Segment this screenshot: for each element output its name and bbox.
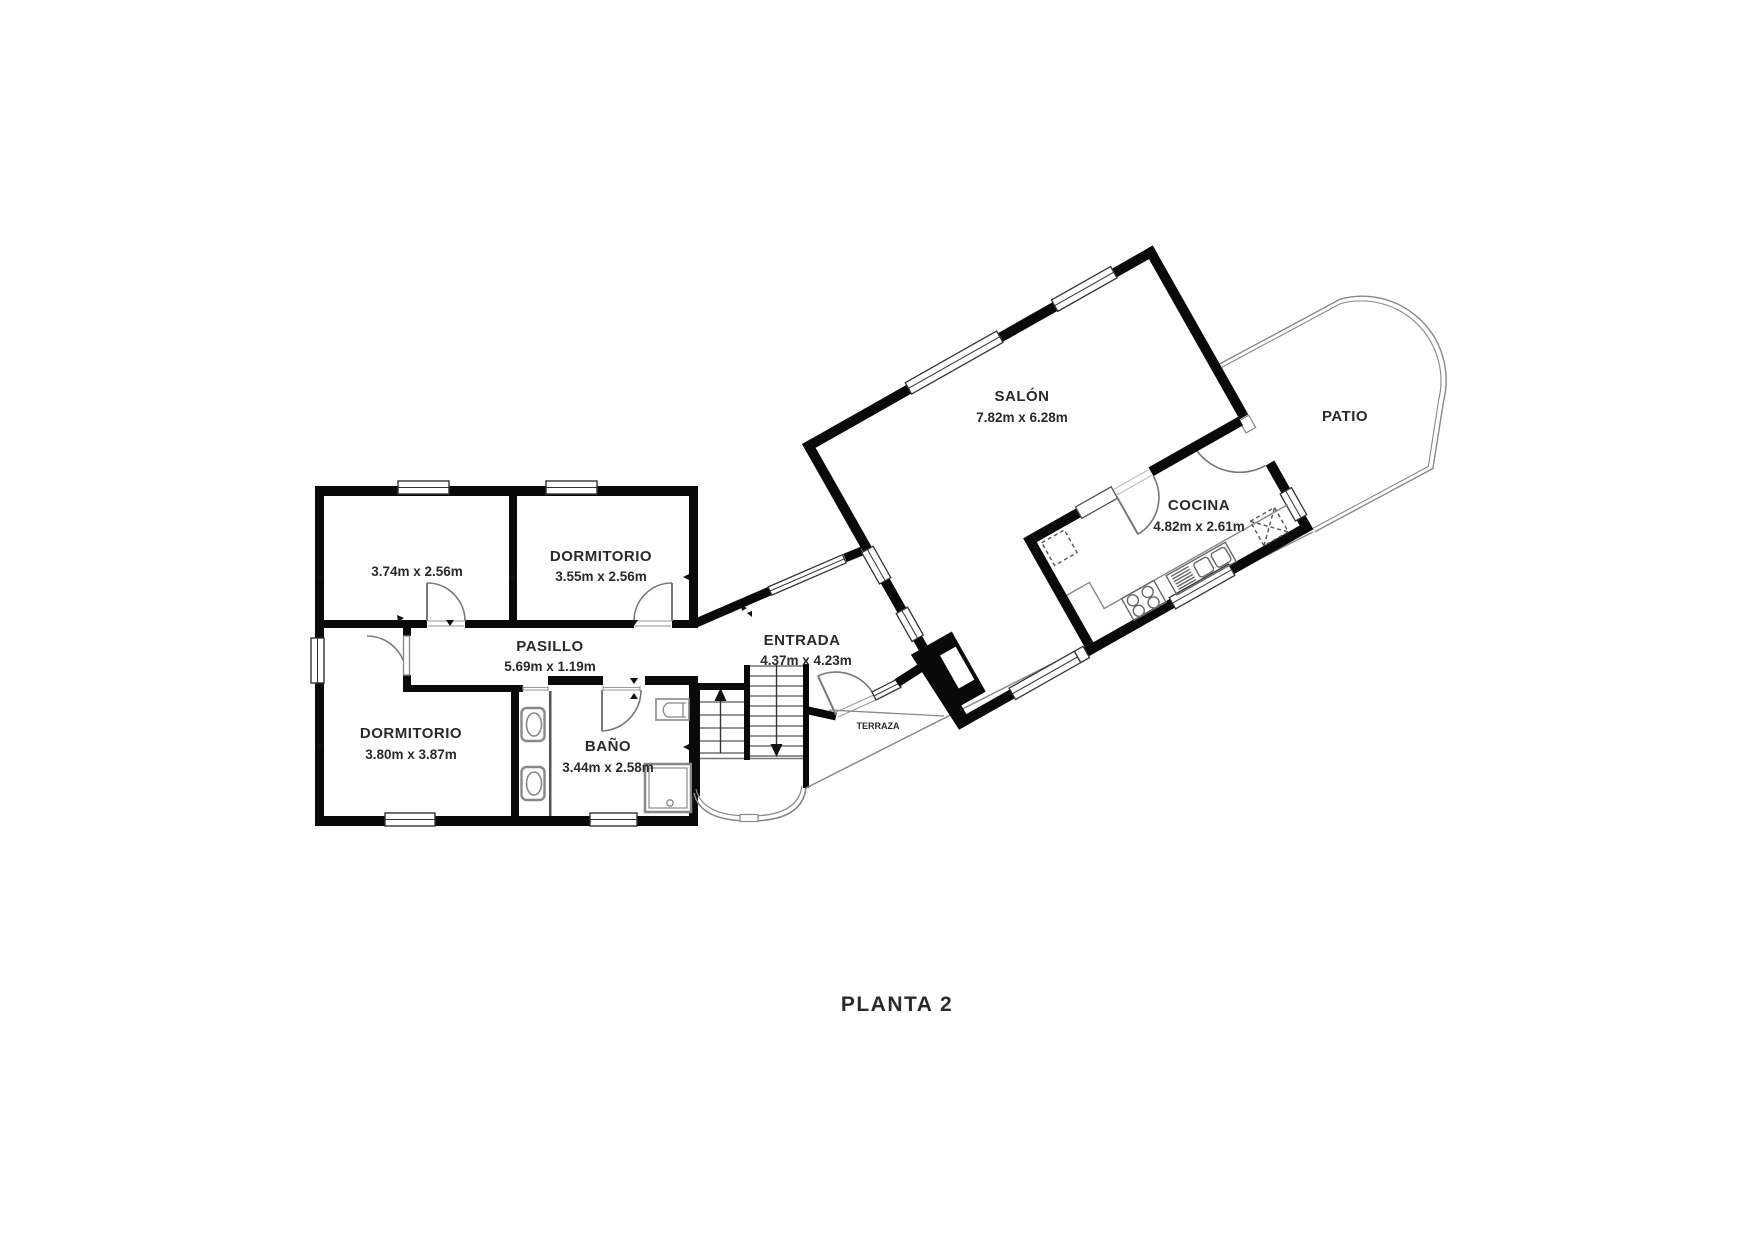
svg-text:PASILLO: PASILLO xyxy=(516,638,583,655)
svg-text:PATIO: PATIO xyxy=(1322,408,1368,425)
svg-text:3.55m x 2.56m: 3.55m x 2.56m xyxy=(555,569,647,584)
svg-text:3.44m x 2.58m: 3.44m x 2.58m xyxy=(562,760,654,775)
svg-text:3.74m x 2.56m: 3.74m x 2.56m xyxy=(371,564,463,579)
svg-text:5.69m x 1.19m: 5.69m x 1.19m xyxy=(504,659,596,674)
svg-text:PLANTA 2: PLANTA 2 xyxy=(841,993,953,1016)
svg-text:3.80m x 3.87m: 3.80m x 3.87m xyxy=(365,747,457,762)
svg-text:4.37m x 4.23m: 4.37m x 4.23m xyxy=(760,653,852,668)
svg-text:SALÓN: SALÓN xyxy=(995,387,1050,405)
svg-text:DORMITORIO: DORMITORIO xyxy=(550,548,652,565)
svg-text:DORMITORIO: DORMITORIO xyxy=(360,725,462,742)
svg-text:COCINA: COCINA xyxy=(1168,497,1230,514)
svg-text:7.82m x 6.28m: 7.82m x 6.28m xyxy=(976,410,1068,425)
svg-text:ENTRADA: ENTRADA xyxy=(764,632,841,649)
svg-text:TERRAZA: TERRAZA xyxy=(857,721,900,731)
svg-text:BAÑO: BAÑO xyxy=(585,737,631,755)
svg-text:4.82m x 2.61m: 4.82m x 2.61m xyxy=(1153,519,1245,534)
